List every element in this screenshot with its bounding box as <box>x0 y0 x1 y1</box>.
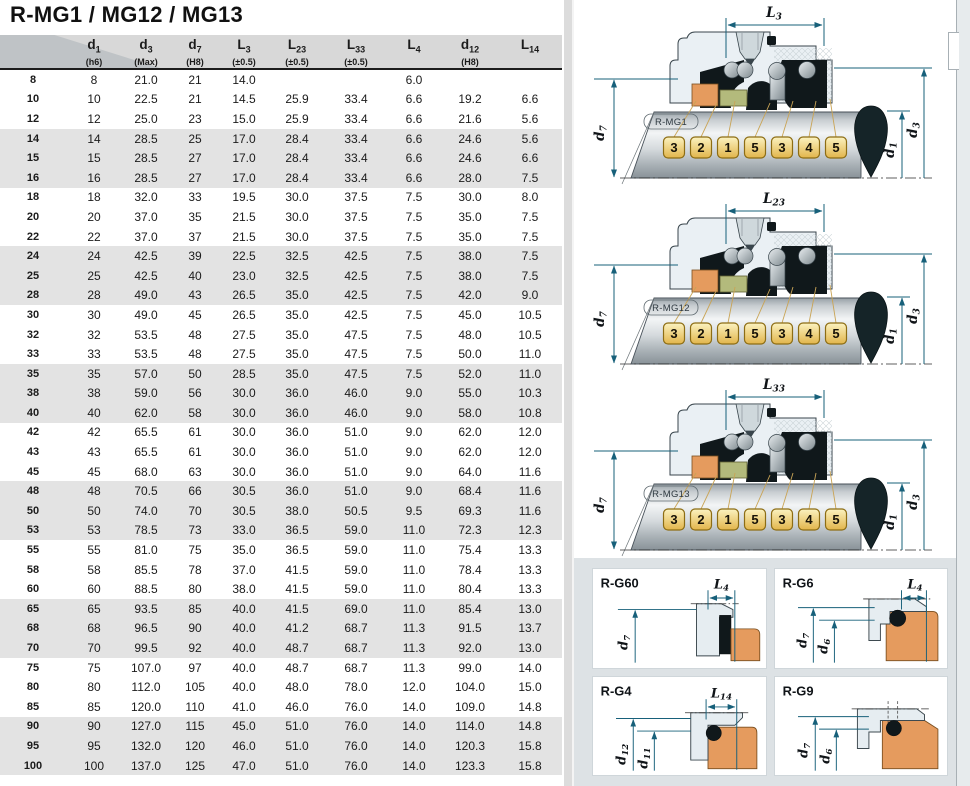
table-cell: 38.0 <box>442 266 498 286</box>
dimension-table: d1(h6)d3(Max)d7(H8)L3(±0.5)L23(±0.5)L33(… <box>0 35 562 775</box>
svg-text:3: 3 <box>778 326 785 341</box>
table-cell: 41.2 <box>268 619 326 639</box>
table-cell: 24.6 <box>442 129 498 149</box>
table-cell: 112.0 <box>122 677 170 697</box>
table-cell: 97 <box>170 658 220 678</box>
table-cell: 51.0 <box>326 462 386 482</box>
svg-text:d7: d7 <box>796 742 812 757</box>
table-cell: 36.0 <box>268 384 326 404</box>
table-cell: 50 <box>170 364 220 384</box>
table-cell: 7.5 <box>386 266 442 286</box>
table-cell: 45 <box>66 462 122 482</box>
row-size-label: 50 <box>0 501 66 521</box>
table-cell: 47.5 <box>326 344 386 364</box>
diagram-label: R-G9 <box>782 683 813 698</box>
table-cell: 115 <box>170 717 220 737</box>
table-cell: 58 <box>170 403 220 423</box>
svg-text:L14: L14 <box>710 686 732 702</box>
seal-detail-r-g6: L4 d7 d6 R-G6 <box>775 569 948 668</box>
svg-text:L4: L4 <box>906 577 922 593</box>
table-cell: 80.4 <box>442 579 498 599</box>
table-cell: 5.6 <box>498 109 562 129</box>
table-row: 242442.53922.532.542.57.538.07.5 <box>0 246 562 266</box>
table-cell: 33.0 <box>220 521 268 541</box>
o-ring <box>886 720 901 735</box>
row-size-label: 8 <box>0 69 66 90</box>
row-size-label: 68 <box>0 619 66 639</box>
table-cell: 62.0 <box>442 423 498 443</box>
table-cell: 66 <box>170 481 220 501</box>
table-cell: 11.6 <box>498 462 562 482</box>
svg-text:d7: d7 <box>795 633 811 648</box>
column-header: d7(H8) <box>170 35 220 69</box>
table-header-row: d1(h6)d3(Max)d7(H8)L3(±0.5)L23(±0.5)L33(… <box>0 35 562 69</box>
seal-diagram-r-mg13: 3 2 1 5 3 4 5 R-MG13 L33 d7 d1 d3 <box>574 372 958 558</box>
table-cell: 51.0 <box>268 756 326 776</box>
svg-text:1: 1 <box>724 512 731 527</box>
table-cell: 36.0 <box>268 462 326 482</box>
seal-detail-r-g9: d7 d6 R-G9 <box>775 677 948 776</box>
drive-ring-orange <box>692 84 718 106</box>
table-row: 505074.07030.538.050.59.569.311.6 <box>0 501 562 521</box>
table-cell: 42.5 <box>326 305 386 325</box>
table-cell: 9.0 <box>386 481 442 501</box>
table-cell: 53.5 <box>122 344 170 364</box>
table-cell: 68.7 <box>326 638 386 658</box>
table-cell: 28.5 <box>122 148 170 168</box>
table-cell: 60 <box>66 579 122 599</box>
table-cell: 9.0 <box>386 423 442 443</box>
table-cell: 90 <box>170 619 220 639</box>
table-cell: 7.5 <box>386 305 442 325</box>
callout-boxes: 3 2 1 5 3 4 5 <box>664 137 847 158</box>
table-cell: 28.4 <box>268 168 326 188</box>
table-cell: 28.5 <box>122 168 170 188</box>
table-cell: 33 <box>170 188 220 208</box>
table-cell <box>326 69 386 90</box>
table-cell: 13.3 <box>498 579 562 599</box>
table-row: 424265.56130.036.051.09.062.012.0 <box>0 423 562 443</box>
table-cell: 28.4 <box>268 129 326 149</box>
table-cell: 21.0 <box>122 69 170 90</box>
table-cell: 15.0 <box>498 677 562 697</box>
row-size-label: 33 <box>0 344 66 364</box>
table-cell: 63 <box>170 462 220 482</box>
table-cell: 15.0 <box>220 109 268 129</box>
table-cell: 41.5 <box>268 560 326 580</box>
table-cell: 30 <box>66 305 122 325</box>
table-cell: 17.0 <box>220 129 268 149</box>
table-row: 121225.02315.025.933.46.621.65.6 <box>0 109 562 129</box>
table-cell: 120.3 <box>442 736 498 756</box>
table-cell: 56 <box>170 384 220 404</box>
table-cell: 46.0 <box>326 384 386 404</box>
svg-text:d7: d7 <box>592 124 610 140</box>
table-cell: 6.6 <box>498 148 562 168</box>
table-cell: 11.0 <box>386 599 442 619</box>
table-cell: 36.0 <box>268 403 326 423</box>
table-cell: 9.5 <box>386 501 442 521</box>
table-cell: 48.0 <box>268 677 326 697</box>
table-row: 383859.05630.036.046.09.055.010.3 <box>0 384 562 404</box>
table-row: 303049.04526.535.042.57.545.010.5 <box>0 305 562 325</box>
table-cell: 42 <box>66 423 122 443</box>
table-cell: 9.0 <box>386 384 442 404</box>
table-cell: 110 <box>170 697 220 717</box>
table-cell: 35.0 <box>220 540 268 560</box>
table-row: 252542.54023.032.542.57.538.07.5 <box>0 266 562 286</box>
table-cell: 40 <box>170 266 220 286</box>
table-cell: 33 <box>66 344 122 364</box>
table-cell: 30.0 <box>220 384 268 404</box>
table-cell: 13.0 <box>498 599 562 619</box>
row-size-label: 80 <box>0 677 66 697</box>
table-cell: 47.5 <box>326 364 386 384</box>
table-cell: 137.0 <box>122 756 170 776</box>
svg-text:d3: d3 <box>905 122 923 138</box>
table-cell: 33.4 <box>326 148 386 168</box>
table-cell: 81.0 <box>122 540 170 560</box>
svg-text:5: 5 <box>751 326 758 341</box>
table-cell: 16 <box>66 168 122 188</box>
table-cell: 49.0 <box>122 286 170 306</box>
table-cell: 65.5 <box>122 442 170 462</box>
table-cell: 40.0 <box>220 677 268 697</box>
panel-r-g4: L14 d12 d11 R-G4 <box>592 676 767 777</box>
table-cell: 14.8 <box>498 697 562 717</box>
svg-text:L4: L4 <box>713 577 729 593</box>
table-cell: 47.0 <box>220 756 268 776</box>
table-cell: 25.9 <box>268 90 326 110</box>
table-cell: 32.0 <box>122 188 170 208</box>
table-cell: 24 <box>66 246 122 266</box>
table-cell: 12.0 <box>386 677 442 697</box>
o-ring <box>706 725 721 740</box>
table-cell: 43 <box>170 286 220 306</box>
table-cell: 50.5 <box>326 501 386 521</box>
table-cell: 76.0 <box>326 697 386 717</box>
panel-r-g9: d7 d6 R-G9 <box>774 676 949 777</box>
panel-r-g6: L4 d7 d6 R-G6 <box>774 568 949 669</box>
table-cell: 35 <box>170 207 220 227</box>
row-size-label: 25 <box>0 266 66 286</box>
svg-text:4: 4 <box>805 140 813 155</box>
table-cell: 14.0 <box>386 756 442 776</box>
table-cell: 7.5 <box>498 168 562 188</box>
row-size-label: 35 <box>0 364 66 384</box>
table-cell: 10.5 <box>498 305 562 325</box>
table-cell: 37.0 <box>122 207 170 227</box>
svg-text:5: 5 <box>832 326 839 341</box>
table-cell: 64.0 <box>442 462 498 482</box>
row-size-label: 42 <box>0 423 66 443</box>
table-cell: 35.0 <box>268 364 326 384</box>
svg-text:5: 5 <box>751 512 758 527</box>
table-cell: 7.5 <box>386 188 442 208</box>
table-cell: 15 <box>66 148 122 168</box>
table-cell: 9.0 <box>498 286 562 306</box>
table-cell: 7.5 <box>386 207 442 227</box>
table-cell: 11.0 <box>386 579 442 599</box>
svg-text:4: 4 <box>805 326 813 341</box>
drive-ring-orange <box>692 456 718 478</box>
table-cell: 22.5 <box>122 90 170 110</box>
table-row: 707099.59240.048.768.711.392.013.0 <box>0 638 562 658</box>
row-size-label: 28 <box>0 286 66 306</box>
callout-boxes: 3 2 1 5 3 4 5 <box>664 509 847 530</box>
table-cell: 32 <box>66 325 122 345</box>
table-cell: 78.0 <box>326 677 386 697</box>
table-cell: 51.0 <box>326 423 386 443</box>
svg-text:d12: d12 <box>615 743 631 764</box>
table-cell: 45.0 <box>220 717 268 737</box>
table-cell: 80 <box>66 677 122 697</box>
table-cell: 38.0 <box>268 501 326 521</box>
table-cell: 55.0 <box>442 384 498 404</box>
table-cell <box>442 69 498 90</box>
table-cell: 14.0 <box>220 69 268 90</box>
table-cell: 50.0 <box>442 344 498 364</box>
table-cell: 76.0 <box>326 717 386 737</box>
row-size-label: 55 <box>0 540 66 560</box>
table-row: 222237.03721.530.037.57.535.07.5 <box>0 227 562 247</box>
table-cell: 45.0 <box>442 305 498 325</box>
table-cell: 12.0 <box>498 423 562 443</box>
table-cell: 24.6 <box>442 148 498 168</box>
table-cell: 6.6 <box>498 90 562 110</box>
table-cell: 30.0 <box>268 188 326 208</box>
table-cell: 7.5 <box>386 246 442 266</box>
table-cell: 25 <box>170 129 220 149</box>
table-row: 8080112.010540.048.078.012.0104.015.0 <box>0 677 562 697</box>
table-cell: 10.3 <box>498 384 562 404</box>
table-cell: 37.5 <box>326 188 386 208</box>
table-cell: 37 <box>170 227 220 247</box>
table-cell: 11.3 <box>386 619 442 639</box>
table-cell: 35.0 <box>268 325 326 345</box>
table-cell: 75.4 <box>442 540 498 560</box>
table-row: 333353.54827.535.047.57.550.011.0 <box>0 344 562 364</box>
table-cell: 41.5 <box>268 599 326 619</box>
dimension-table-wrap: d1(h6)d3(Max)d7(H8)L3(±0.5)L23(±0.5)L33(… <box>0 35 562 775</box>
table-cell: 76.0 <box>326 736 386 756</box>
table-row: 282849.04326.535.042.57.542.09.0 <box>0 286 562 306</box>
table-cell: 11.0 <box>386 560 442 580</box>
table-cell: 68.4 <box>442 481 498 501</box>
table-cell: 21 <box>170 90 220 110</box>
diagram-label: R-MG13 <box>652 489 690 500</box>
table-cell: 26.5 <box>220 286 268 306</box>
table-cell: 42.5 <box>326 246 386 266</box>
seal-detail-r-g60: L4 d7 R-G60 <box>593 569 766 668</box>
table-cell: 70 <box>66 638 122 658</box>
table-row: 101022.52114.525.933.46.619.26.6 <box>0 90 562 110</box>
table-cell: 78.4 <box>442 560 498 580</box>
table-cell: 99.0 <box>442 658 498 678</box>
svg-text:1: 1 <box>724 326 731 341</box>
table-cell: 105 <box>170 677 220 697</box>
column-header: L33(±0.5) <box>326 35 386 69</box>
table-cell: 57.0 <box>122 364 170 384</box>
diagram-label: R-G6 <box>782 575 813 590</box>
svg-text:d7: d7 <box>617 635 633 650</box>
table-cell: 72.3 <box>442 521 498 541</box>
table-cell: 38.0 <box>220 579 268 599</box>
table-cell: 18 <box>66 188 122 208</box>
table-cell: 7.5 <box>498 266 562 286</box>
row-size-label: 14 <box>0 129 66 149</box>
table-cell: 52.0 <box>442 364 498 384</box>
table-cell: 45 <box>170 305 220 325</box>
table-cell: 8 <box>66 69 122 90</box>
table-cell: 7.5 <box>386 344 442 364</box>
table-cell: 70 <box>170 501 220 521</box>
table-cell: 27 <box>170 148 220 168</box>
table-cell: 69.0 <box>326 599 386 619</box>
table-cell: 59.0 <box>326 521 386 541</box>
row-size-label: 95 <box>0 736 66 756</box>
table-cell: 61 <box>170 442 220 462</box>
table-cell: 40 <box>66 403 122 423</box>
table-cell: 19.5 <box>220 188 268 208</box>
table-cell: 51.0 <box>326 442 386 462</box>
table-cell: 58.0 <box>442 403 498 423</box>
table-cell: 13.3 <box>498 560 562 580</box>
table-cell: 93.5 <box>122 599 170 619</box>
row-size-label: 12 <box>0 109 66 129</box>
svg-text:d11: d11 <box>637 747 653 768</box>
seal-diagram-r-mg12: 3 2 1 5 3 4 5 R-MG12 L23 d7 d1 d3 <box>574 186 958 372</box>
table-row: 323253.54827.535.047.57.548.010.5 <box>0 325 562 345</box>
table-cell: 13.0 <box>498 638 562 658</box>
column-header: L23(±0.5) <box>268 35 326 69</box>
o-ring <box>889 610 905 626</box>
table-cell: 46.0 <box>220 736 268 756</box>
table-cell: 6.6 <box>386 129 442 149</box>
table-cell: 30.0 <box>268 207 326 227</box>
seal-ring <box>720 615 732 654</box>
table-cell: 46.0 <box>268 697 326 717</box>
table-row: 535378.57333.036.559.011.072.312.3 <box>0 521 562 541</box>
table-cell: 32.5 <box>268 266 326 286</box>
retainer-olive <box>720 276 747 292</box>
table-cell: 6.6 <box>386 90 442 110</box>
row-size-label: 32 <box>0 325 66 345</box>
table-cell: 109.0 <box>442 697 498 717</box>
table-cell: 36.0 <box>268 442 326 462</box>
column-header: d3(Max) <box>122 35 170 69</box>
table-row: 606088.58038.041.559.011.080.413.3 <box>0 579 562 599</box>
table-cell: 12 <box>66 109 122 129</box>
row-size-label: 58 <box>0 560 66 580</box>
table-cell: 21.5 <box>220 207 268 227</box>
table-cell: 68.7 <box>326 658 386 678</box>
svg-text:d6: d6 <box>816 639 832 654</box>
table-cell: 68.0 <box>122 462 170 482</box>
retainer-olive <box>720 90 747 106</box>
row-size-label: 22 <box>0 227 66 247</box>
table-cell: 48.0 <box>442 325 498 345</box>
table-cell: 21.6 <box>442 109 498 129</box>
row-size-label: 45 <box>0 462 66 482</box>
table-cell: 65.5 <box>122 423 170 443</box>
table-cell: 80 <box>170 579 220 599</box>
svg-text:3: 3 <box>778 512 785 527</box>
table-cell: 40.0 <box>220 599 268 619</box>
table-cell: 51.0 <box>326 481 386 501</box>
table-cell: 13.7 <box>498 619 562 639</box>
table-cell: 78 <box>170 560 220 580</box>
row-size-label: 18 <box>0 188 66 208</box>
table-cell: 25.9 <box>268 109 326 129</box>
table-cell: 70.5 <box>122 481 170 501</box>
table-cell: 28.5 <box>220 364 268 384</box>
table-cell: 7.5 <box>498 207 562 227</box>
table-cell: 62.0 <box>122 403 170 423</box>
table-cell: 38.0 <box>442 246 498 266</box>
table-cell: 36.0 <box>268 423 326 443</box>
row-size-label: 15 <box>0 148 66 168</box>
table-cell: 14.8 <box>498 717 562 737</box>
table-cell: 95 <box>66 736 122 756</box>
table-cell: 49.0 <box>122 305 170 325</box>
panel-r-g60: L4 d7 R-G60 <box>592 568 767 669</box>
table-cell: 19.2 <box>442 90 498 110</box>
svg-text:2: 2 <box>697 326 704 341</box>
svg-text:L3: L3 <box>765 5 782 23</box>
table-row: 181832.03319.530.037.57.530.08.0 <box>0 188 562 208</box>
table-cell: 120.0 <box>122 697 170 717</box>
page-title: R-MG1 / MG12 / MG13 <box>10 2 243 28</box>
table-row: 555581.07535.036.559.011.075.413.3 <box>0 540 562 560</box>
row-size-label: 10 <box>0 90 66 110</box>
table-cell: 78.5 <box>122 521 170 541</box>
table-row: 8821.02114.06.0 <box>0 69 562 90</box>
table-cell: 73 <box>170 521 220 541</box>
table-cell: 32.5 <box>268 246 326 266</box>
svg-text:1: 1 <box>724 140 731 155</box>
table-cell: 125 <box>170 756 220 776</box>
table-cell: 37.5 <box>326 227 386 247</box>
table-cell: 90 <box>66 717 122 737</box>
table-cell: 27.5 <box>220 344 268 364</box>
table-cell: 120 <box>170 736 220 756</box>
table-row: 100100137.012547.051.076.014.0123.315.8 <box>0 756 562 776</box>
table-cell: 33.4 <box>326 129 386 149</box>
table-cell: 12.0 <box>498 442 562 462</box>
table-cell: 22.5 <box>220 246 268 266</box>
table-cell: 10.5 <box>498 325 562 345</box>
diagram-label: R-MG1 <box>655 117 687 128</box>
svg-text:3: 3 <box>670 512 677 527</box>
table-cell: 27 <box>170 168 220 188</box>
table-cell: 51.0 <box>268 717 326 737</box>
row-size-label: 65 <box>0 599 66 619</box>
table-cell: 11.0 <box>386 521 442 541</box>
column-header: d12(H8) <box>442 35 498 69</box>
svg-text:L23: L23 <box>762 191 785 209</box>
table-row: 9090127.011545.051.076.014.0114.014.8 <box>0 717 562 737</box>
table-cell: 15.8 <box>498 756 562 776</box>
table-cell: 30.5 <box>220 501 268 521</box>
table-cell: 8.0 <box>498 188 562 208</box>
table-cell: 25.0 <box>122 109 170 129</box>
table-cell: 17.0 <box>220 168 268 188</box>
table-cell: 37.0 <box>220 560 268 580</box>
table-cell: 41.5 <box>268 579 326 599</box>
column-header: L3(±0.5) <box>220 35 268 69</box>
row-size-label: 40 <box>0 403 66 423</box>
